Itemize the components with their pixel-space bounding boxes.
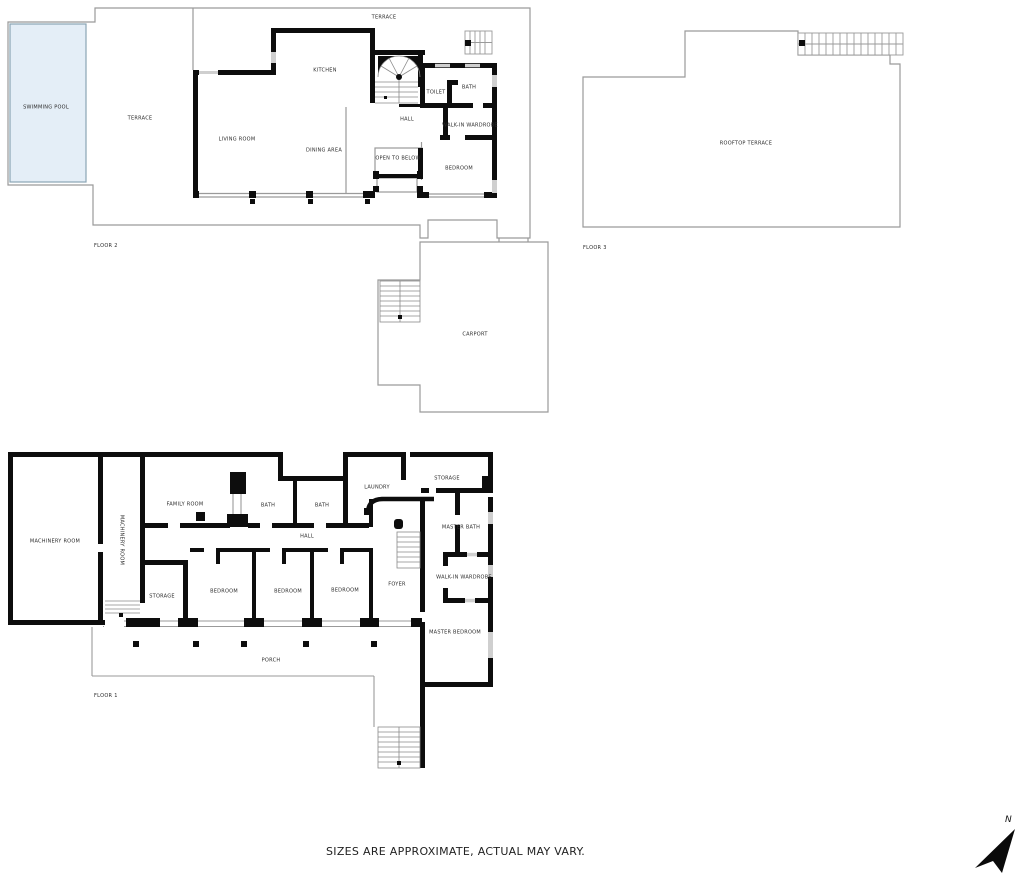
room-label-master-bath: MASTER BATH — [442, 526, 480, 531]
north-arrow-icon — [975, 829, 1015, 873]
room-label-bath-1: BATH — [261, 504, 275, 509]
room-label-terrace: TERRACE — [128, 117, 153, 122]
room-label-bedroom-f2: BEDROOM — [445, 167, 473, 172]
carport-stairs-icon — [380, 281, 420, 322]
room-label-dining-area: DINING AREA — [306, 149, 342, 154]
room-label-toilet: TOILET — [427, 91, 446, 96]
room-label-swimming-pool: SWIMMING POOL — [23, 106, 69, 111]
corridor-exit-gap — [104, 618, 124, 628]
room-label-bedroom-3: BEDROOM — [331, 589, 359, 594]
room-label-walk-in-wardrobe-f2: WALK-IN WARDROBE — [442, 124, 498, 129]
room-label-foyer: FOYER — [388, 583, 405, 588]
room-label-carport: CARPORT — [462, 333, 487, 338]
room-label-living-room: LIVING ROOM — [219, 138, 256, 143]
room-label-laundry: LAUNDRY — [364, 486, 390, 491]
swimming-pool-shape — [10, 24, 86, 182]
north-label: N — [1005, 815, 1012, 825]
room-label-machinery-room: MACHINERY ROOM — [30, 540, 80, 545]
carport-plan — [378, 242, 548, 412]
floor2-caption: FLOOR 2 — [94, 244, 118, 249]
room-label-open-to-below: OPEN TO BELOW — [375, 157, 420, 162]
room-label-storage-bottom: STORAGE — [149, 595, 175, 600]
room-label-bedroom-1: BEDROOM — [210, 590, 238, 595]
room-label-terrace-top: TERRACE — [372, 16, 397, 21]
floor3-stairs-icon — [798, 33, 903, 55]
floorplan-drawing — [0, 0, 1024, 874]
floorplan-page: SWIMMING POOL TERRACE TERRACE KITCHEN LI… — [0, 0, 1024, 874]
floor1-plan — [8, 452, 493, 768]
floor1-caption: FLOOR 1 — [94, 694, 118, 699]
room-label-hall-f1: HALL — [300, 535, 314, 540]
disclaimer-text: SIZES ARE APPROXIMATE, ACTUAL MAY VARY. — [326, 845, 585, 858]
foyer-stairs-icon — [397, 532, 420, 568]
room-label-storage-top: STORAGE — [434, 477, 460, 482]
room-label-bedroom-2: BEDROOM — [274, 590, 302, 595]
room-label-bath-2: BATH — [315, 504, 329, 509]
floor2-walls — [193, 28, 497, 204]
entry-stairs-icon — [378, 727, 420, 768]
room-label-rooftop-terrace: ROOFTOP TERRACE — [720, 142, 772, 147]
room-label-walk-in-wardrobe-f1: WALK-IN WARDROBE — [436, 576, 492, 581]
floor3-caption: FLOOR 3 — [583, 246, 607, 251]
room-label-master-bedroom: MASTER BEDROOM — [429, 631, 481, 636]
terrace-ladder-icon — [465, 31, 492, 54]
room-label-bath-f2: BATH — [462, 86, 476, 91]
room-label-kitchen: KITCHEN — [313, 69, 336, 74]
corridor-steps-icon — [105, 601, 140, 617]
floor3-plan — [583, 31, 903, 227]
room-label-hall-f2: HALL — [400, 118, 414, 123]
room-label-machinery-room-vertical: MACHINERY ROOM — [119, 515, 124, 565]
room-label-family-room: FAMILY ROOM — [167, 503, 204, 508]
room-label-porch: PORCH — [262, 659, 281, 664]
